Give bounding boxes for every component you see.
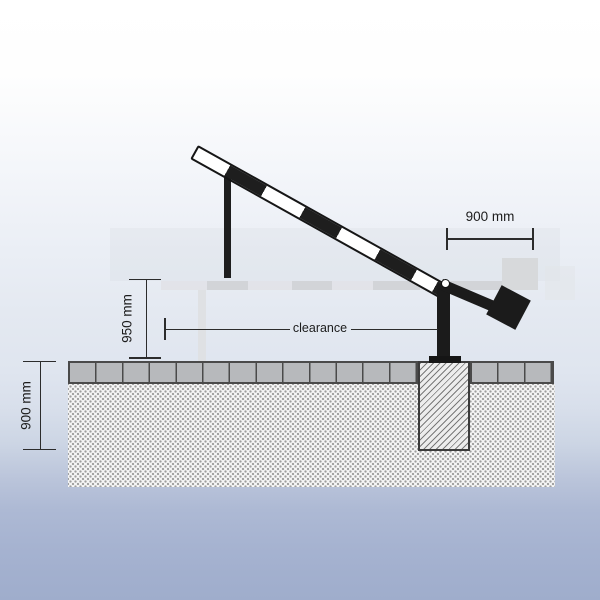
tip-support-post: [224, 167, 231, 278]
counterweight-block: [486, 285, 531, 330]
pivot-hub: [441, 279, 450, 288]
ghost-right-block: [545, 266, 575, 300]
pavement-blocks-right: [470, 361, 554, 384]
dim-label-barrier-height: 950 mm: [120, 288, 135, 350]
dim-tick: [129, 279, 161, 281]
dim-label-foundation-depth: 900 mm: [19, 375, 34, 437]
dim-label-counterweight-width: 900 mm: [447, 209, 533, 224]
ghost-rail-segment: [292, 281, 332, 290]
pavement-blocks-left: [68, 361, 418, 384]
stand-base-plate: [429, 356, 461, 363]
dim-line-foundation-depth: [40, 361, 42, 449]
foundation-block: [418, 361, 470, 451]
dim-tick: [532, 228, 534, 250]
dim-tick: [164, 318, 166, 340]
dim-tick: [23, 361, 56, 363]
dim-line-counterweight-width: [447, 238, 533, 240]
ghost-step-block: [502, 258, 538, 290]
barrier-cross-section-diagram: 900 mm 950 mm 900 mm clearance: [0, 0, 600, 600]
dim-tick: [23, 449, 56, 451]
dim-tick: [446, 228, 448, 250]
dim-tick: [129, 357, 161, 359]
barrier-stand-post: [437, 284, 450, 358]
ghost-rail-segment: [207, 281, 248, 290]
ghost-post: [198, 290, 206, 362]
dim-line-barrier-height: [146, 279, 148, 358]
dim-label-clearance: clearance: [270, 321, 370, 335]
soil-section: [68, 384, 555, 487]
